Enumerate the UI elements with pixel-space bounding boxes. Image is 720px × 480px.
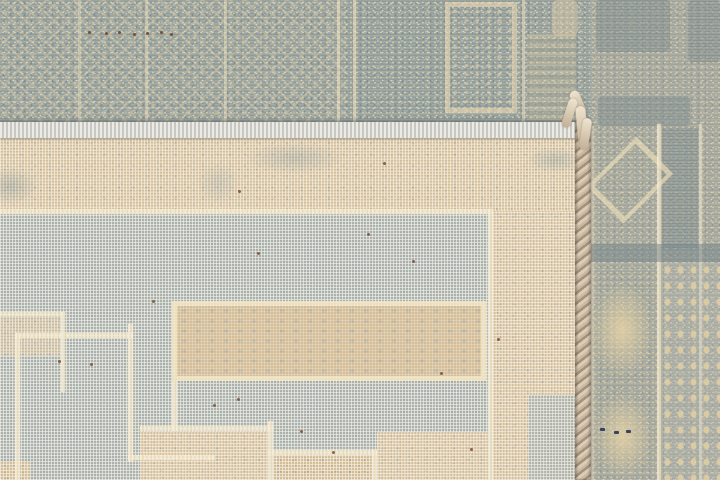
panel-divider-line bbox=[78, 0, 81, 124]
leaf-medallion-motif bbox=[592, 392, 654, 480]
meander-line bbox=[172, 381, 177, 431]
meander-line bbox=[372, 450, 377, 480]
band-gray-mottle bbox=[0, 138, 578, 211]
meander-line bbox=[268, 450, 377, 455]
panel-divider-line bbox=[337, 0, 340, 124]
panel-divider-line bbox=[353, 0, 356, 124]
selvage-braid bbox=[575, 116, 591, 480]
meander-line bbox=[0, 209, 492, 214]
front-pile-right bbox=[590, 0, 720, 480]
brown-knot-specks bbox=[88, 31, 91, 34]
leaf-medallion-motif bbox=[590, 282, 654, 378]
gray-weave-patch bbox=[528, 395, 576, 480]
meander-line bbox=[0, 312, 65, 316]
beige-pile-patch bbox=[552, 0, 578, 36]
front-pile-top bbox=[0, 0, 578, 124]
meander-line bbox=[128, 324, 133, 462]
fold-binding-strip bbox=[0, 122, 578, 138]
panel-divider-line bbox=[522, 0, 525, 124]
meander-line bbox=[15, 333, 20, 480]
weave-beige-patch bbox=[377, 432, 488, 480]
dark-gray-band bbox=[590, 244, 720, 262]
gray-pile-block bbox=[598, 96, 690, 126]
panel-divider-line bbox=[224, 0, 227, 124]
meander-line bbox=[140, 426, 273, 431]
rug-photo bbox=[0, 0, 720, 480]
meander-line bbox=[488, 209, 493, 480]
center-beige-bar bbox=[172, 301, 486, 381]
navy-knot-specks bbox=[600, 428, 605, 431]
weave-beige-patch bbox=[273, 455, 372, 480]
gray-pile-block bbox=[662, 128, 698, 248]
meander-line bbox=[128, 455, 215, 460]
gray-pile-block bbox=[596, 0, 670, 52]
meander-line bbox=[61, 312, 65, 392]
brown-knot-specks bbox=[367, 233, 370, 236]
meander-line bbox=[15, 333, 133, 338]
diamond-lattice-pattern bbox=[0, 0, 348, 124]
rug-back-weave bbox=[0, 138, 578, 480]
gray-pile-block bbox=[688, 0, 720, 62]
panel-divider-line bbox=[145, 0, 148, 124]
ornament-block-outline bbox=[445, 2, 517, 113]
dot-border-band bbox=[661, 262, 720, 480]
corner-tassel bbox=[551, 88, 603, 152]
